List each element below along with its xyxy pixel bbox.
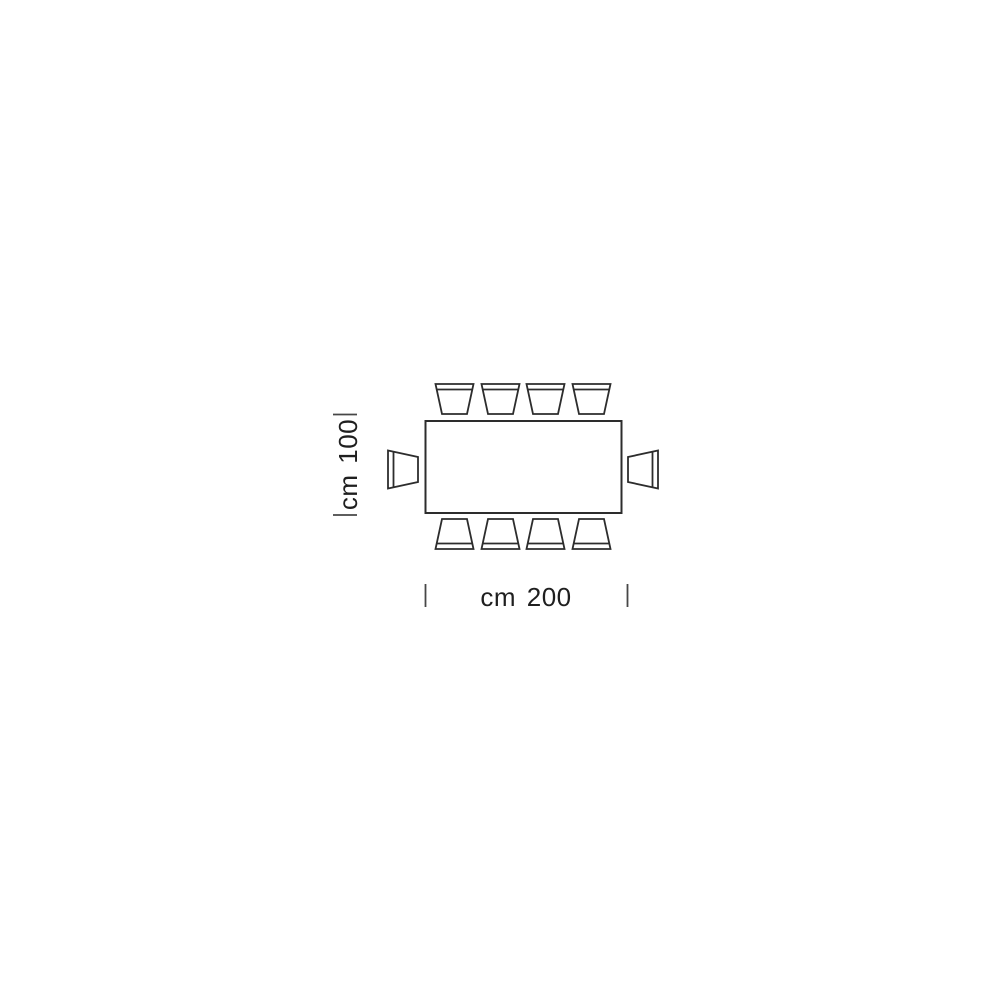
chair-icon xyxy=(482,384,520,414)
table-dimension-diagram: cm 200 cm 100 xyxy=(0,0,990,990)
chair-icon xyxy=(527,519,565,549)
chair-icon xyxy=(436,384,474,414)
width-dimension: cm 200 xyxy=(426,582,628,612)
chairs-top-row xyxy=(436,384,611,414)
chairs-bottom-row xyxy=(436,519,611,549)
diagram-page: cm 200 cm 100 xyxy=(0,0,990,990)
chair-icon xyxy=(436,519,474,549)
width-dim-label: cm 200 xyxy=(480,582,571,612)
chair-icon-right-end xyxy=(628,451,658,489)
chair-icon-left-end xyxy=(388,451,418,489)
chair-icon xyxy=(527,384,565,414)
chair-icon xyxy=(573,384,611,414)
chair-icon xyxy=(573,519,611,549)
chair-icon xyxy=(482,519,520,549)
table-top xyxy=(426,421,622,513)
depth-dimension: cm 100 xyxy=(333,415,363,516)
depth-dim-label: cm 100 xyxy=(333,419,363,510)
